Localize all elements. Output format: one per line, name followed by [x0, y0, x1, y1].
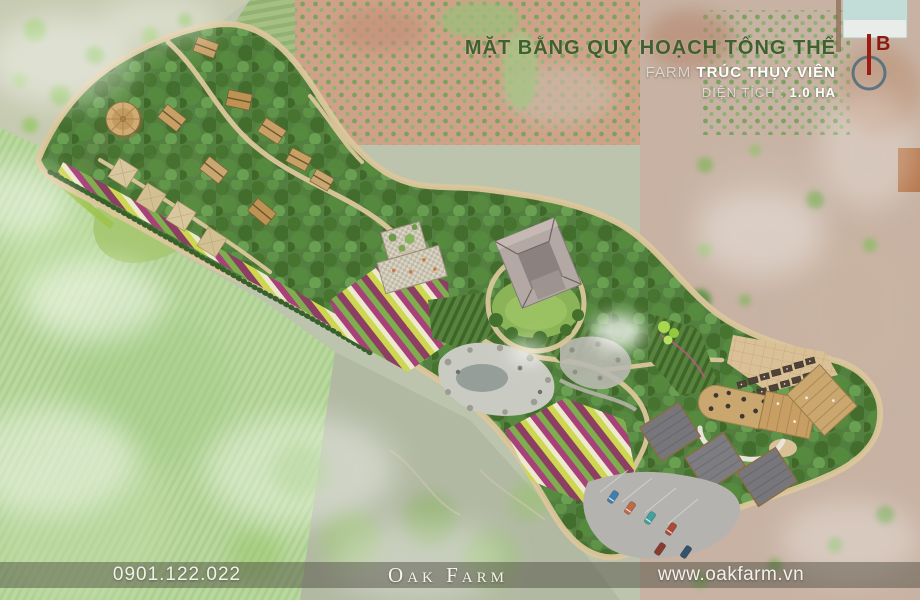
master-plan-poster: MẶT BẰNG QUY HOẠCH TỔNG THỂ FARM TRÚC TH…	[0, 0, 920, 600]
compass-letter: B	[876, 33, 890, 55]
area-label: DIỆN TÍCH :	[702, 85, 785, 100]
brand-name: Oak Farm	[338, 562, 558, 588]
farm-label: FARM	[646, 64, 692, 81]
farm-name-line: FARM TRÚC THỤY VIÊN	[465, 64, 836, 83]
plan-title: MẶT BẰNG QUY HOẠCH TỔNG THỂ	[465, 36, 836, 61]
area-line: DIỆN TÍCH : 1.0 HA	[465, 85, 836, 101]
phone-number: 0901.122.022	[62, 562, 292, 588]
compass-north-icon: B	[843, 28, 907, 100]
area-value: 1.0 HA	[790, 85, 836, 100]
title-block: MẶT BẰNG QUY HOẠCH TỔNG THỂ FARM TRÚC TH…	[465, 36, 836, 101]
website-url: www.oakfarm.vn	[616, 562, 846, 588]
farm-name: TRÚC THỤY VIÊN	[696, 64, 836, 81]
footer-bar: 0901.122.022 Oak Farm www.oakfarm.vn	[0, 562, 920, 588]
